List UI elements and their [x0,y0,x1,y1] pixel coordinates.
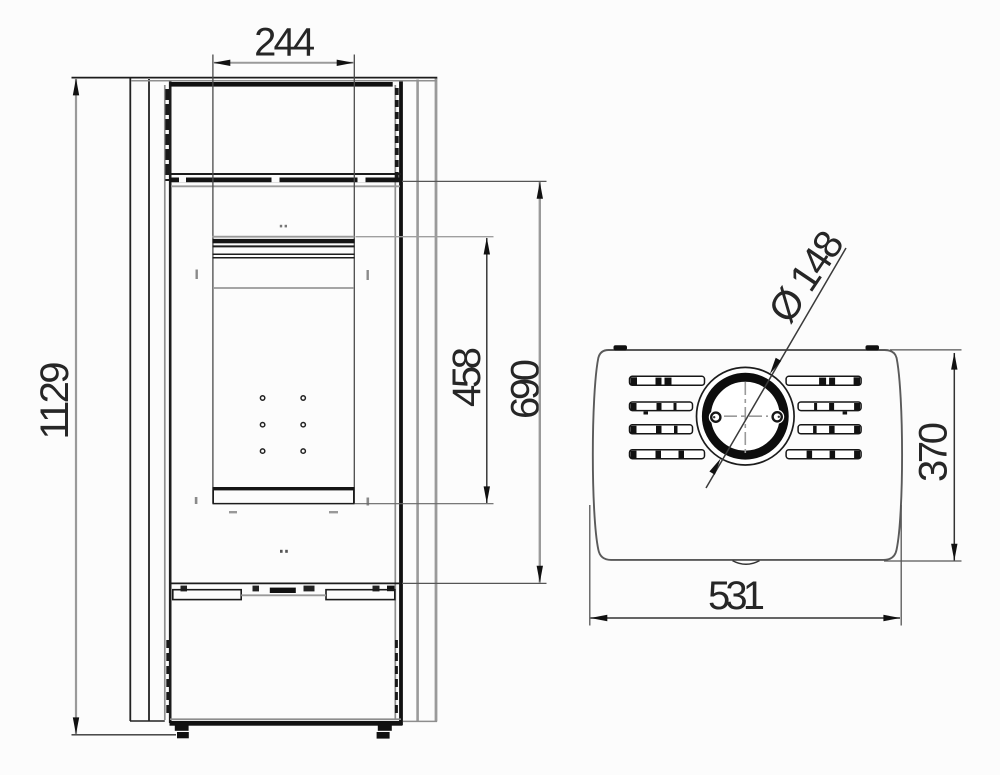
svg-text:1129: 1129 [33,362,77,440]
svg-text:244: 244 [254,21,315,65]
svg-text:370: 370 [911,422,955,482]
svg-text:531: 531 [708,574,765,618]
svg-text:458: 458 [445,347,489,407]
svg-text:Ø 148: Ø 148 [760,223,852,331]
